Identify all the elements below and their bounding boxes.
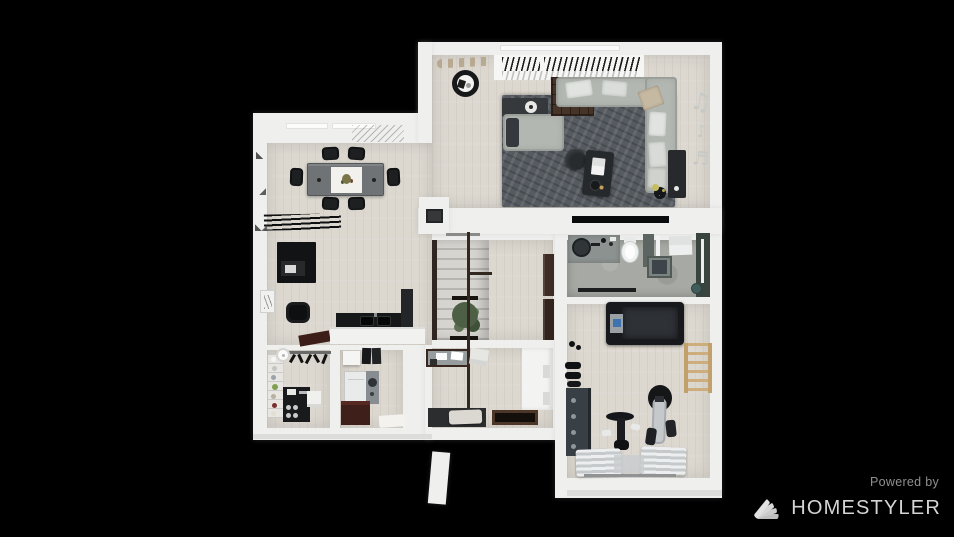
music-note-decal: ♬ [691, 149, 710, 169]
jar [271, 375, 276, 380]
handrail-crossbar [467, 272, 492, 275]
washer-door [368, 378, 377, 387]
table-item [457, 79, 466, 89]
rack-knob [571, 414, 576, 419]
kettlebell [576, 345, 581, 350]
shower-drain [652, 260, 667, 274]
table-runner [331, 167, 362, 193]
paper-item [436, 353, 447, 360]
sink-basin [377, 316, 391, 326]
wall-niche [426, 209, 443, 223]
blind-shadow [352, 125, 404, 142]
washer-knob [370, 392, 374, 396]
dining-table [307, 163, 384, 196]
laptop [591, 157, 606, 175]
storage-cube [307, 391, 321, 407]
vanity-accessory [609, 242, 613, 246]
vanity-counter [568, 235, 620, 263]
treadmill [606, 302, 684, 345]
round-pouf [565, 149, 586, 170]
black-sideboard [277, 242, 316, 283]
wall-cabinet [543, 254, 554, 296]
planter-slat [450, 336, 478, 340]
jar [271, 357, 276, 362]
music-note-decal: ♫ [688, 89, 713, 116]
toilet-bowl [621, 241, 639, 263]
pergola-slats [544, 57, 640, 71]
homestyler-watermark: Powered by HOMESTYLER [754, 475, 941, 524]
place-setting [317, 178, 321, 182]
hanging-towel [362, 348, 372, 364]
wardrobe-niche [543, 365, 550, 378]
rack-knob [571, 430, 576, 435]
treadmill-belt [622, 307, 678, 339]
dining-chair [290, 168, 304, 186]
wall-art [255, 221, 267, 231]
hanging-towels [669, 236, 693, 256]
machine-dial [286, 405, 291, 410]
wardrobe-niche [543, 392, 550, 405]
daybed-pillow [506, 118, 519, 147]
dumbbell-rack [566, 388, 591, 456]
bike-pedal [631, 423, 641, 430]
cup [674, 186, 679, 191]
living-bottom-wall [418, 208, 722, 234]
center-mat [614, 455, 644, 473]
planter-slat [452, 296, 478, 300]
powered-by-label: Powered by [754, 475, 939, 489]
media-sideboard [668, 150, 686, 198]
ceiling-lamp [276, 348, 290, 362]
tray-item [529, 105, 533, 109]
sketch-lines [264, 295, 272, 309]
machine-strip [299, 391, 307, 394]
corner-plant-leaves [652, 184, 659, 191]
island-counter [330, 327, 425, 344]
lamp-base-plate [449, 409, 482, 424]
dining-window-strip [286, 123, 328, 129]
stair-door-track [446, 233, 480, 236]
wall-cabinet [543, 299, 554, 340]
kettlebell [569, 341, 575, 347]
jar [272, 384, 278, 390]
washer-panel [366, 371, 379, 404]
machine-dial [293, 413, 298, 418]
dumbbell [565, 362, 581, 369]
wall-shelf-box [343, 351, 360, 365]
kitchen-counter [336, 313, 404, 328]
mat-shadow [584, 474, 676, 477]
shower-glass-reflection [701, 239, 704, 283]
faucet [591, 243, 600, 246]
towel-bar [578, 288, 636, 292]
jar [272, 403, 277, 408]
dining-chair [322, 147, 340, 161]
paper-item [451, 351, 464, 360]
bucket [691, 283, 702, 294]
shower-tray [647, 256, 672, 278]
sofa-pillow [601, 80, 627, 97]
elliptical-pedal [665, 420, 677, 438]
flower-centerpiece [342, 174, 351, 184]
round-side-table [452, 70, 479, 97]
dining-chair [348, 197, 365, 211]
faucet [374, 313, 377, 317]
floorplan-render: ♫ ♪ ♬ [0, 0, 954, 537]
daybed [503, 114, 564, 151]
handrail-pole [467, 232, 470, 422]
bike-pedal [602, 429, 612, 436]
jar [271, 394, 276, 399]
pantry-shelving [268, 354, 283, 418]
dining-chair [348, 146, 366, 160]
pergola-slats [502, 57, 540, 71]
white-floor-mat [379, 414, 406, 428]
sink-basin [360, 316, 374, 326]
toilet [621, 237, 639, 263]
slatted-bench [264, 213, 341, 230]
dining-chair [387, 168, 401, 187]
coffee-station [283, 387, 310, 422]
white-wardrobe [522, 348, 553, 410]
music-note-decal: ♪ [695, 123, 708, 141]
vanity-accessory [601, 238, 606, 243]
lamp-center [282, 354, 285, 357]
dumbbell [565, 372, 581, 379]
left-outer-wall-face [253, 434, 432, 439]
glass-console [426, 349, 469, 367]
machine-dial [293, 405, 298, 410]
wall-art [256, 150, 265, 159]
gold-item [599, 185, 603, 189]
jar [272, 366, 277, 371]
potted-plant [452, 302, 478, 328]
exercise-mat [641, 446, 687, 476]
maroon-cabinet [341, 401, 370, 425]
bike-frame [617, 418, 625, 442]
jar [271, 411, 276, 416]
wall-tv-strip [572, 216, 669, 223]
table-item [466, 83, 471, 88]
gym-outer-wall-face [567, 490, 722, 496]
wall-sketch [260, 290, 275, 313]
swatch-fan-icon [754, 493, 784, 524]
rack-knob [571, 444, 576, 449]
dumbbell [567, 381, 581, 387]
entry-door-mat [492, 410, 538, 425]
dining-chair [322, 197, 340, 211]
envelope-decor [469, 348, 489, 367]
exterior-step [428, 451, 450, 504]
rack-knob [571, 398, 576, 403]
round-basin [572, 238, 591, 257]
brand-name: HOMESTYLER [791, 497, 941, 520]
soap-dish [610, 237, 616, 241]
sofa-pillow [648, 112, 666, 137]
dark-item [430, 359, 437, 365]
washing-machine [344, 371, 379, 404]
machine-dial [286, 413, 291, 418]
lounge-stool [286, 302, 310, 323]
hanging-towel [372, 348, 382, 364]
window-strip [500, 45, 620, 51]
living-left-wall [418, 42, 432, 143]
wall-art [256, 186, 266, 195]
shelf-item [285, 265, 296, 273]
place-setting [372, 178, 376, 182]
coffee-table [582, 150, 615, 198]
sofa-pillow [648, 141, 667, 167]
treadmill-screen [613, 319, 621, 327]
wooden-wall-bars [684, 343, 712, 393]
machine-top [287, 389, 296, 395]
elliptical-console [655, 396, 664, 402]
washer-seam [348, 379, 364, 380]
